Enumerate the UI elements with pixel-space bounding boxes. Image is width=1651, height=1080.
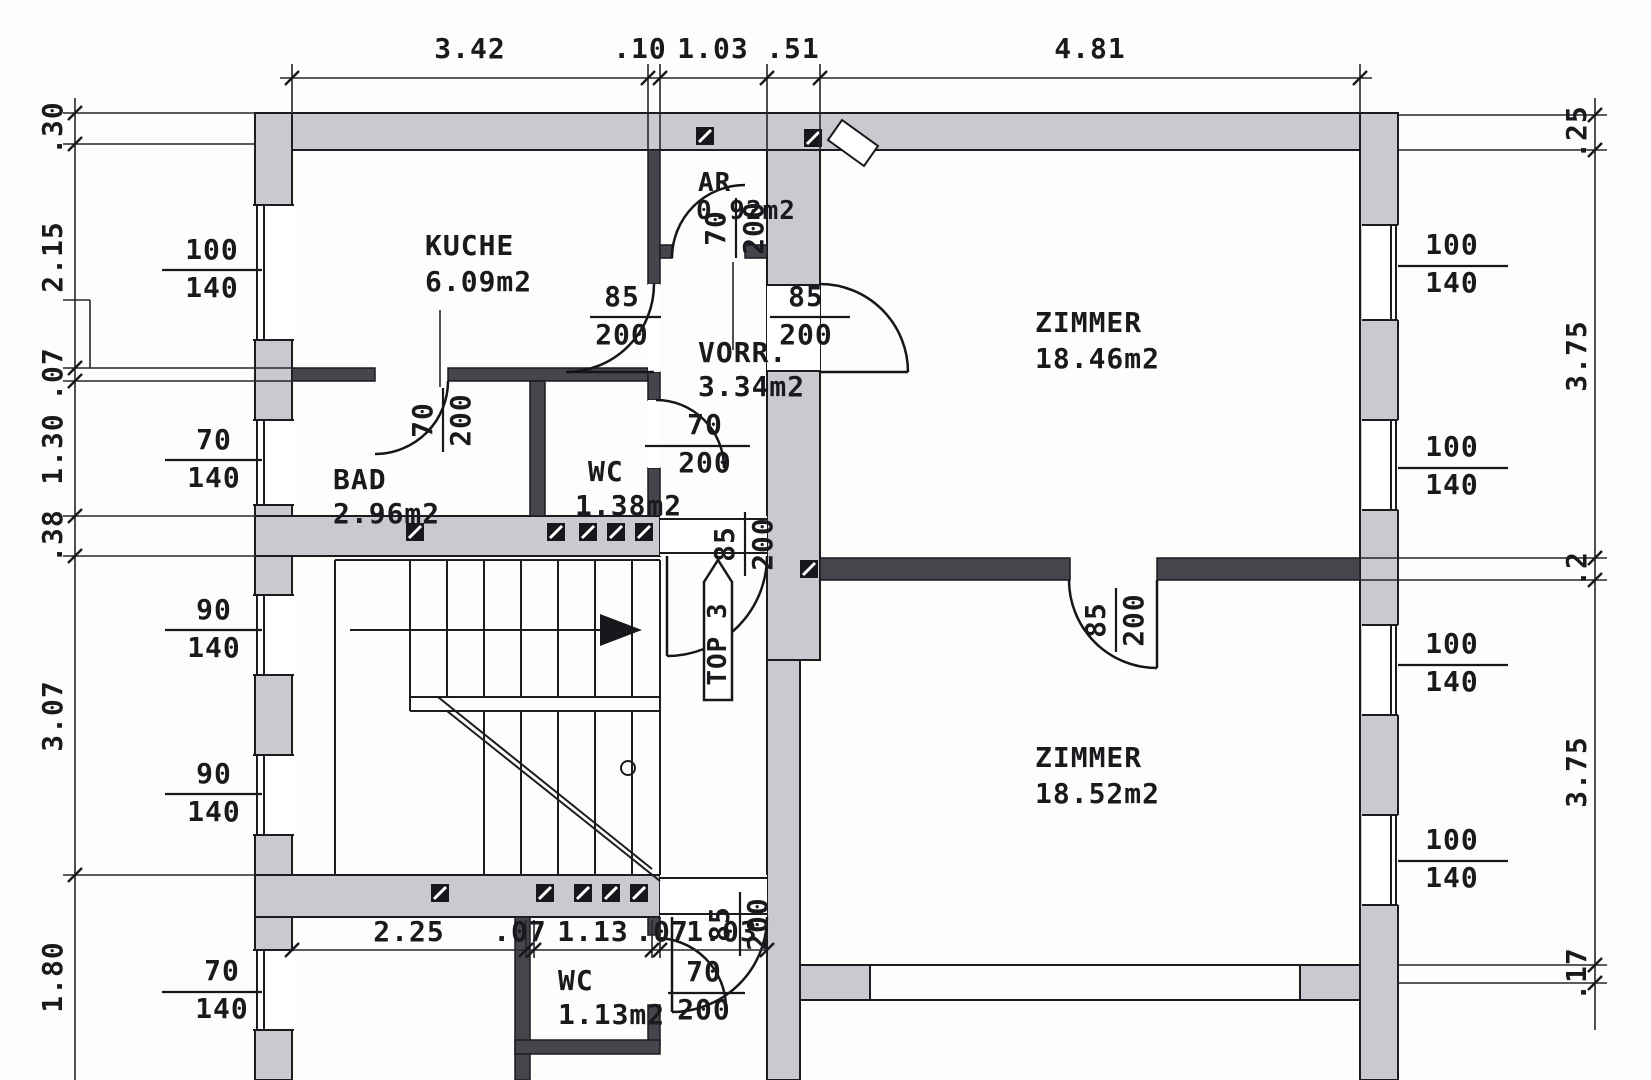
svg-text:140: 140 — [185, 271, 239, 304]
window-100x140-z2-top — [1362, 625, 1403, 715]
hatch-top-1 — [696, 127, 714, 145]
wall-kueche-vorr-upper — [648, 150, 660, 284]
dim-right-4: 3.75 — [1560, 736, 1593, 807]
dim-bottom-3: 1.13 — [557, 915, 628, 948]
wall-zimmer-sep-right — [1157, 558, 1360, 580]
stair-direction-arrow — [600, 614, 642, 646]
top3-label: TOP 3 — [703, 602, 733, 685]
svg-text:140: 140 — [1425, 266, 1479, 299]
svg-text:140: 140 — [187, 631, 241, 664]
floor-plan-page: TOP 3 3.42 .10 1.03 .51 4.81 .30 2.15 .0… — [0, 0, 1651, 1080]
svg-text:200: 200 — [595, 318, 649, 351]
window-label-right-2: 100 140 — [1398, 430, 1508, 501]
svg-text:BAD: BAD — [333, 463, 387, 496]
svg-text:6.09m2: 6.09m2 — [425, 265, 532, 298]
dim-left-6: 3.07 — [36, 680, 69, 751]
svg-text:WC: WC — [558, 964, 594, 997]
window-100x140-z1-bottom — [1362, 420, 1403, 510]
svg-text:85: 85 — [1079, 602, 1112, 638]
svg-text:70: 70 — [204, 954, 240, 987]
door-label-zimmer2: 85 200 — [1079, 588, 1150, 652]
dim-left-5: .38 — [36, 509, 69, 563]
svg-text:140: 140 — [1425, 468, 1479, 501]
wall-corridor-upper — [767, 150, 820, 660]
room-label-kueche: KUCHE 6.09m2 — [425, 229, 532, 298]
window-label-left-4: 90 140 — [165, 757, 262, 828]
svg-text:KUCHE: KUCHE — [425, 229, 514, 262]
dim-left-3: .07 — [36, 347, 69, 401]
svg-text:1.38m2: 1.38m2 — [575, 489, 682, 522]
wall-top — [255, 113, 1398, 150]
room-label-bad: BAD 2.96m2 — [333, 463, 440, 530]
svg-text:200: 200 — [678, 446, 732, 479]
dim-right-2: 3.75 — [1560, 320, 1593, 391]
window-label-left-5: 70 140 — [162, 954, 262, 1025]
svg-text:85: 85 — [708, 526, 741, 562]
svg-text:200: 200 — [677, 993, 731, 1026]
dim-top-1: 3.42 — [434, 32, 505, 65]
dim-top-3: 1.03 — [677, 32, 748, 65]
wall-wc2-bottom — [515, 1040, 660, 1054]
svg-text:100: 100 — [1425, 430, 1479, 463]
window-label-right-1: 100 140 — [1398, 228, 1508, 299]
dim-right-1: .25 — [1560, 105, 1593, 159]
dim-right-5: .17 — [1560, 947, 1593, 1001]
svg-text:90: 90 — [196, 757, 232, 790]
dim-top-5: 4.81 — [1054, 32, 1125, 65]
svg-text:2.96m2: 2.96m2 — [333, 497, 440, 530]
svg-text:140: 140 — [187, 795, 241, 828]
svg-text:WC: WC — [588, 455, 624, 488]
svg-text:140: 140 — [187, 461, 241, 494]
window-70x140-bottom — [253, 950, 294, 1030]
svg-text:0.92m2: 0.92m2 — [696, 196, 796, 226]
svg-text:140: 140 — [1425, 665, 1479, 698]
dim-bottom-4: .07 — [635, 915, 689, 948]
window-label-left-1: 100 140 — [162, 233, 262, 304]
dim-left-1: .30 — [36, 101, 69, 155]
svg-text:VORR.: VORR. — [698, 336, 787, 369]
svg-text:100: 100 — [185, 233, 239, 266]
dim-right-3: .2 — [1560, 551, 1593, 587]
svg-text:70: 70 — [686, 955, 722, 988]
window-100x140-kueche — [253, 205, 294, 340]
wall-band-left — [800, 965, 870, 1000]
svg-text:3.34m2: 3.34m2 — [698, 370, 805, 403]
door-arc-zimmer1 — [820, 284, 908, 372]
window-100x140-z2-bottom — [1362, 815, 1403, 905]
wall-band-lines — [800, 965, 1360, 1000]
dim-top-2: .10 — [613, 32, 667, 65]
svg-text:1.13m2: 1.13m2 — [558, 998, 665, 1031]
svg-text:200: 200 — [444, 393, 477, 447]
floor-plan-drawing: TOP 3 3.42 .10 1.03 .51 4.81 .30 2.15 .0… — [0, 0, 1651, 1080]
window-labels-right: 100 140 100 140 100 140 100 140 — [1398, 228, 1508, 894]
svg-text:200: 200 — [1117, 593, 1150, 647]
svg-text:140: 140 — [195, 992, 249, 1025]
svg-text:85: 85 — [604, 280, 640, 313]
room-label-zimmer1: ZIMMER 18.46m2 — [1035, 306, 1160, 375]
svg-text:200: 200 — [746, 517, 779, 571]
svg-text:18.52m2: 18.52m2 — [1035, 777, 1160, 810]
dim-left-7: 1.80 — [36, 941, 69, 1012]
svg-text:85: 85 — [703, 906, 736, 942]
wall-hall-top — [255, 516, 660, 556]
svg-text:200: 200 — [741, 897, 774, 951]
dim-top-4: .51 — [766, 32, 820, 65]
wall-kueche-bad-right — [448, 368, 648, 381]
svg-text:ZIMMER: ZIMMER — [1035, 306, 1142, 339]
wall-bad-wc — [530, 381, 545, 516]
stairs — [335, 560, 660, 881]
dim-left-2: 2.15 — [36, 221, 69, 292]
window-label-left-2: 70 140 — [165, 423, 262, 494]
svg-text:70: 70 — [406, 402, 439, 438]
svg-text:100: 100 — [1425, 228, 1479, 261]
window-label-right-3: 100 140 — [1398, 627, 1508, 698]
svg-text:ZIMMER: ZIMMER — [1035, 741, 1142, 774]
wall-kueche-bad-left — [292, 368, 375, 381]
room-label-wc2: WC 1.13m2 — [558, 964, 665, 1031]
window-label-right-4: 100 140 — [1398, 823, 1508, 894]
window-100x140-z1-top — [1362, 225, 1403, 320]
dim-bottom-2: .07 — [493, 915, 547, 948]
svg-text:90: 90 — [196, 593, 232, 626]
svg-text:70: 70 — [196, 423, 232, 456]
wall-corridor-lower — [767, 660, 800, 1080]
hatch-sep-wall — [800, 560, 818, 578]
dim-bottom-1: 2.25 — [373, 915, 444, 948]
opening-wc1-door — [648, 400, 660, 468]
room-label-wc1: WC 1.38m2 — [575, 455, 682, 522]
window-70x140-bad — [253, 420, 294, 505]
window-90x140-hall-1 — [253, 595, 294, 675]
wall-ar-bottom-left — [660, 245, 672, 258]
svg-text:85: 85 — [788, 280, 824, 313]
room-label-zimmer2: ZIMMER 18.52m2 — [1035, 741, 1160, 810]
wall-band-right — [1300, 965, 1360, 1000]
svg-text:70: 70 — [687, 408, 723, 441]
svg-text:140: 140 — [1425, 861, 1479, 894]
window-label-left-3: 90 140 — [165, 593, 262, 664]
top3-marker: TOP 3 — [703, 560, 733, 700]
svg-text:100: 100 — [1425, 627, 1479, 660]
wall-hall-bottom — [255, 875, 660, 917]
wall-zimmer-sep-left — [820, 558, 1070, 580]
svg-text:18.46m2: 18.46m2 — [1035, 342, 1160, 375]
wall-kueche-vorr-mid — [648, 372, 660, 400]
window-labels-left: 100 140 70 140 90 140 90 140 70 140 — [162, 233, 262, 1025]
svg-text:AR: AR — [698, 168, 731, 198]
svg-text:100: 100 — [1425, 823, 1479, 856]
dim-left-4: 1.30 — [36, 413, 69, 484]
